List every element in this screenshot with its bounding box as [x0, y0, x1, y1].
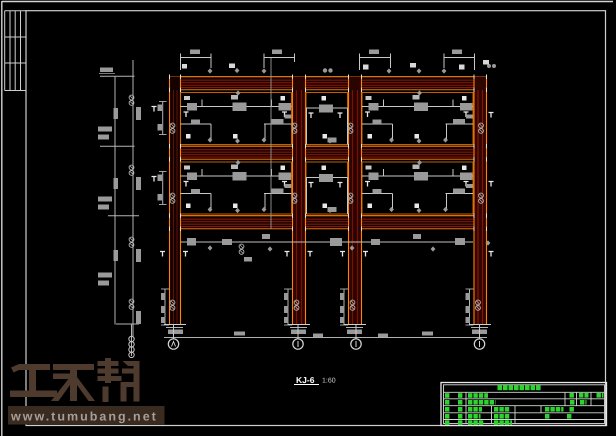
svg-text:www.tumubang.net: www.tumubang.net: [10, 410, 158, 424]
svg-text:KJ-6: KJ-6: [296, 375, 315, 385]
svg-text:1:60: 1:60: [322, 378, 336, 385]
